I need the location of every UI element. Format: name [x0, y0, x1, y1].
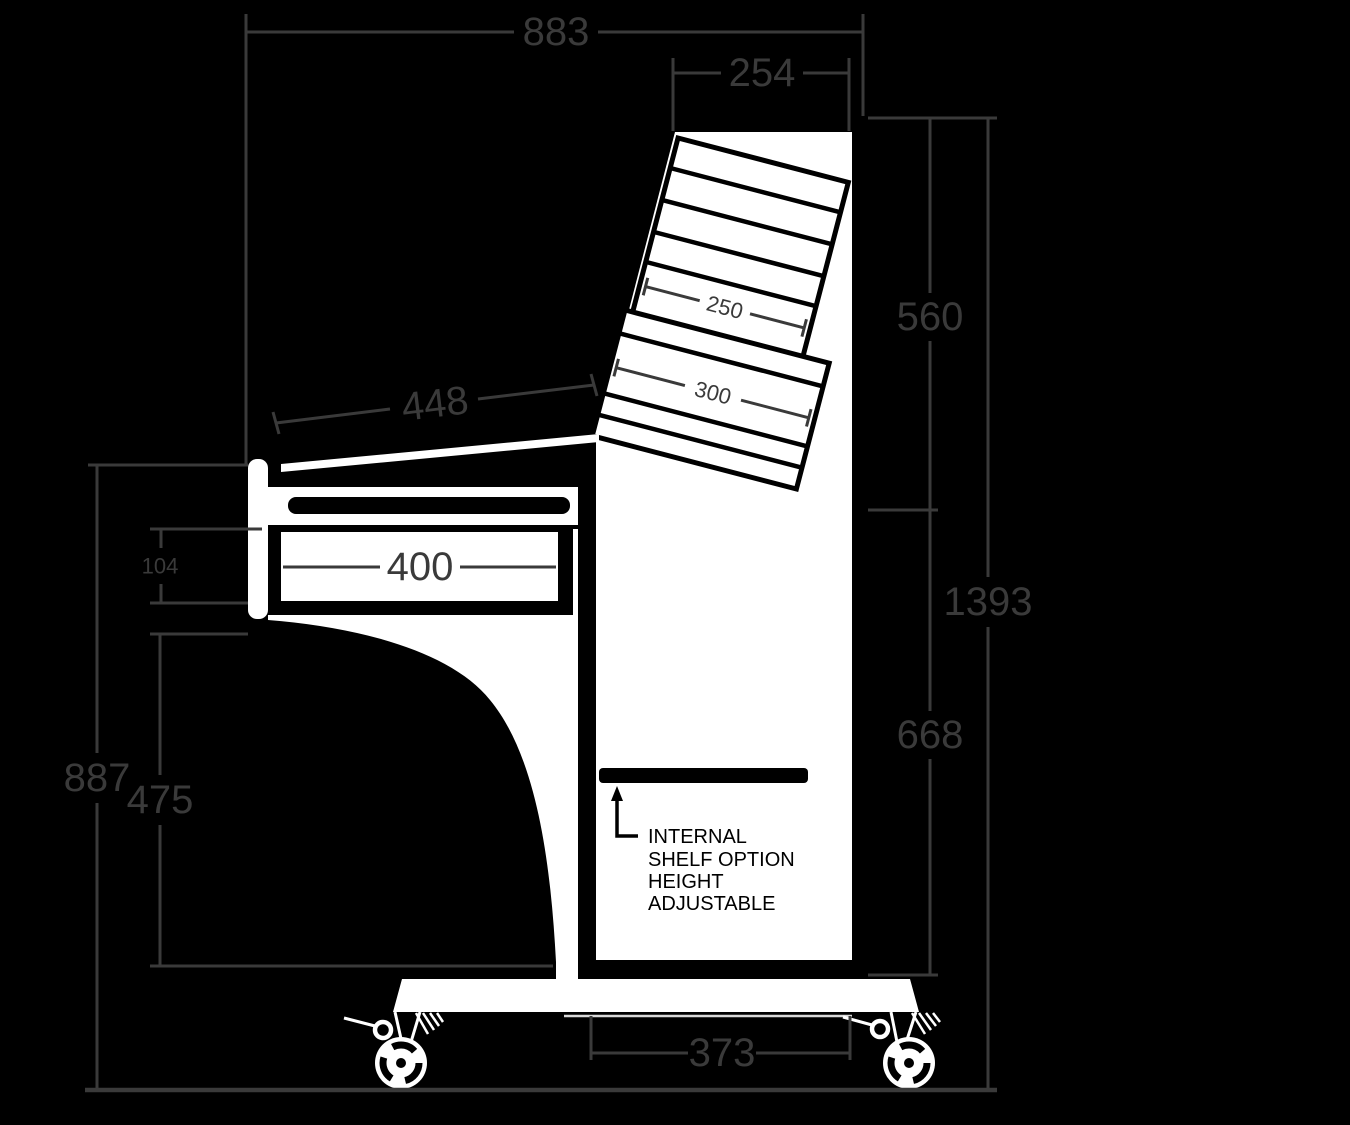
shelf-note-line3: HEIGHT: [648, 871, 724, 893]
dim-label-104: 104: [142, 554, 179, 579]
desk-front-edge: [248, 459, 268, 619]
dim-label-560: 560: [897, 295, 964, 339]
shelf-note-line4: ADJUSTABLE: [648, 893, 775, 915]
column-foot: [556, 958, 578, 982]
dim-label-373: 373: [689, 1031, 756, 1075]
drawer-top-line: [268, 525, 578, 529]
lectern-technical-drawing: INTERNAL SHELF OPTION HEIGHT ADJUSTABLE …: [0, 0, 1350, 1125]
pen-tray-slot: [288, 497, 570, 514]
dim-label-1393: 1393: [944, 580, 1033, 624]
base-platform: [393, 979, 919, 1012]
shelf-note-line1: INTERNAL: [648, 826, 747, 848]
dim-label-887: 887: [64, 756, 131, 800]
dim-label-400: 400: [387, 545, 454, 589]
dim-label-475: 475: [127, 778, 194, 822]
internal-shelf: [599, 768, 808, 783]
wheel-hub: [396, 1058, 406, 1068]
dim-label-883: 883: [523, 10, 590, 54]
dim-label-448: 448: [399, 378, 470, 430]
wheel-hub: [904, 1058, 914, 1068]
pedestal-bottom-panel: [578, 960, 852, 975]
dim-label-254: 254: [729, 51, 796, 95]
drawer-unit: 400: [268, 487, 578, 618]
pedestal-front-panel: [578, 437, 596, 962]
shelf-note-line2: SHELF OPTION: [648, 849, 795, 871]
dim-label-668: 668: [897, 713, 964, 757]
